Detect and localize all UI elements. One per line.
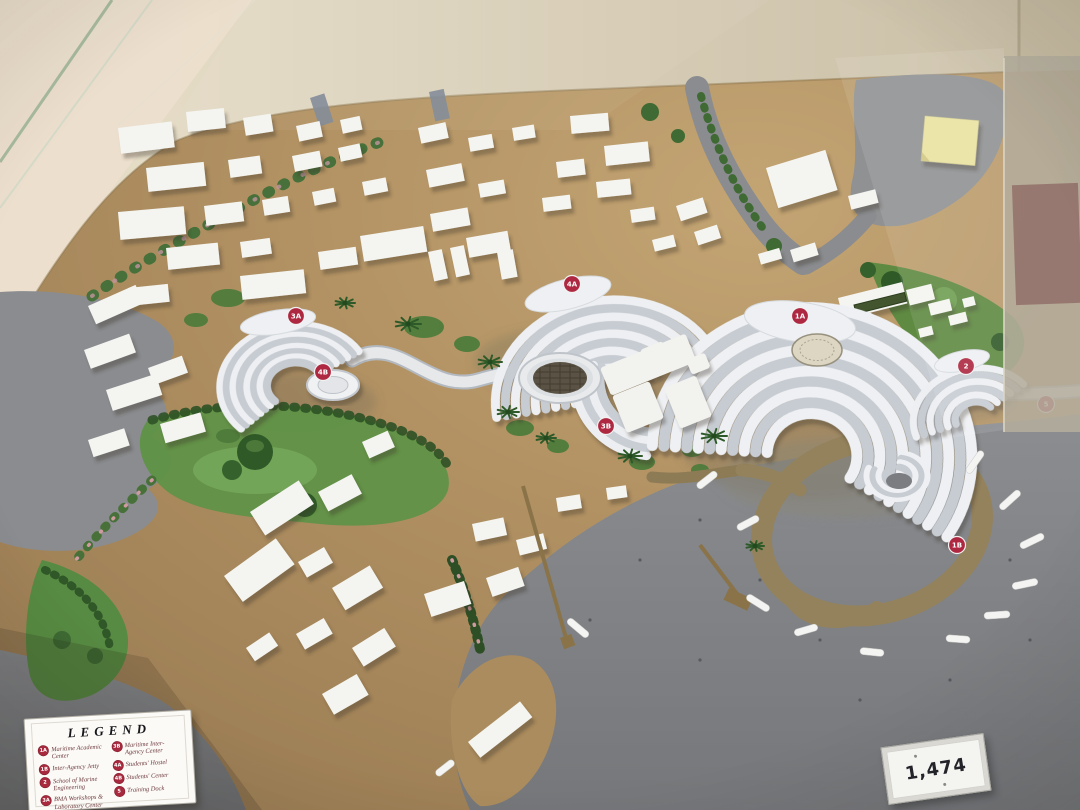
- legend-badge: 3B: [111, 741, 122, 752]
- legend-entry: 4B Students' Center: [113, 770, 182, 784]
- legend-entry: 1B Inter-Agency Jetty: [39, 761, 108, 775]
- architectural-model-photo: 1A 4A 3A 4B 3B 2 5 1B: [0, 0, 1080, 810]
- glass-reflections: [0, 0, 1080, 810]
- legend-badge: 5: [114, 786, 125, 797]
- pin-dot: [914, 754, 917, 757]
- legend-label: Students' Hostel: [125, 758, 167, 769]
- legend-entry: 5 Training Dock: [114, 783, 183, 797]
- legend-card: LEGEND 1A Maritime Academic Center 1B In…: [24, 709, 197, 810]
- legend-badge: 3A: [41, 796, 52, 807]
- legend-label: Maritime Academic Center: [51, 742, 107, 761]
- legend-label: Students' Center: [126, 770, 168, 781]
- legend-inner: LEGEND 1A Maritime Academic Center 1B In…: [31, 715, 189, 807]
- pin-dot: [943, 783, 946, 786]
- legend-badge: 4A: [112, 760, 123, 771]
- legend-column-left: 1A Maritime Academic Center 1B Inter-Age…: [38, 742, 110, 810]
- legend-badge: 1A: [38, 745, 49, 756]
- legend-label: BMA Workshops & Laboratory Center: [54, 793, 110, 810]
- legend-label: Training Dock: [127, 784, 165, 794]
- model-number-inner: 1,474: [886, 739, 986, 800]
- legend-badge: 4B: [113, 773, 124, 784]
- legend-badge: 2: [40, 777, 51, 788]
- legend-column-right: 3B Maritime Inter-Agency Center 4A Stude…: [111, 738, 183, 808]
- model-number-value: 1,474: [904, 754, 968, 784]
- model-scene: 1A 4A 3A 4B 3B 2 5 1B: [0, 0, 1080, 810]
- legend-entry: 1A Maritime Academic Center: [38, 742, 107, 762]
- legend-badge: 1B: [39, 764, 50, 775]
- legend-entry: 2 School of Marine Engineering: [40, 774, 109, 794]
- legend-entry: 3A BMA Workshops & Laboratory Center: [41, 793, 110, 810]
- legend-label: Maritime Inter-Agency Center: [124, 738, 180, 757]
- legend-label: Inter-Agency Jetty: [52, 761, 99, 772]
- legend-entry: 3B Maritime Inter-Agency Center: [111, 738, 180, 758]
- legend-entry: 4A Students' Hostel: [112, 757, 181, 771]
- legend-label: School of Marine Engineering: [53, 774, 109, 793]
